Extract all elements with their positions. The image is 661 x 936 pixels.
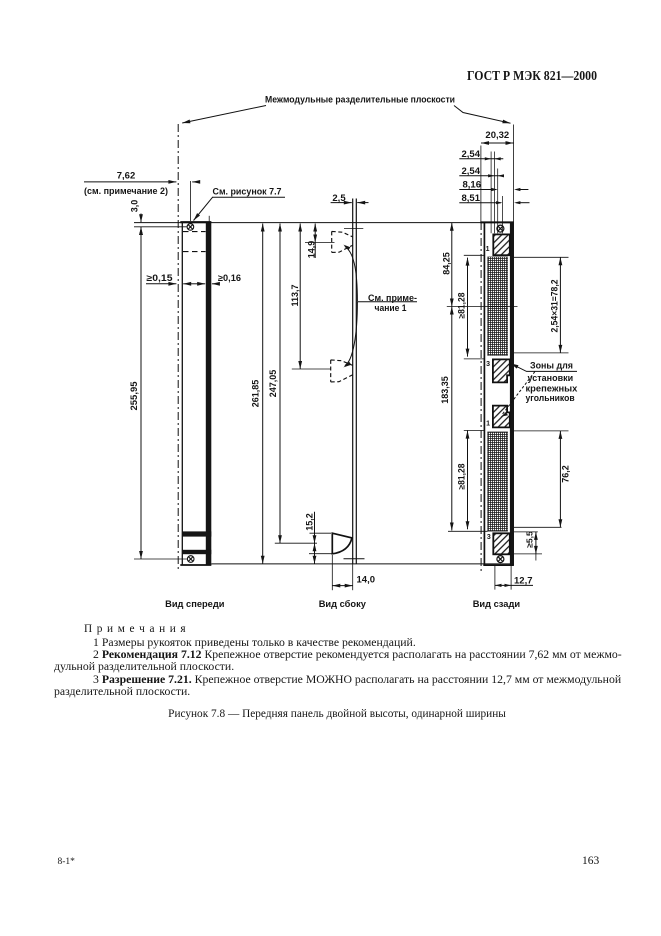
svg-text:≥0,16: ≥0,16 xyxy=(218,273,241,283)
svg-text:3: 3 xyxy=(486,361,490,368)
svg-text:≥81,28: ≥81,28 xyxy=(457,292,467,318)
svg-text:14,9: 14,9 xyxy=(307,241,317,259)
svg-text:ГОСТ Р МЭК 821—2000: ГОСТ Р МЭК 821—2000 xyxy=(467,69,597,84)
svg-text:См. рисунок 7.7: См. рисунок 7.7 xyxy=(213,187,282,197)
svg-text:2,54×31=78,2: 2,54×31=78,2 xyxy=(549,279,559,332)
svg-text:≥0,15: ≥0,15 xyxy=(147,273,173,283)
svg-text:8,51: 8,51 xyxy=(462,193,481,204)
svg-text:14,0: 14,0 xyxy=(357,575,376,586)
svg-text:20,32: 20,32 xyxy=(485,130,509,141)
svg-text:крепежных: крепежных xyxy=(526,383,578,393)
svg-text:183,35: 183,35 xyxy=(440,376,450,404)
svg-text:2,54: 2,54 xyxy=(462,166,481,177)
svg-text:261,85: 261,85 xyxy=(251,380,261,408)
svg-text:≥81,28: ≥81,28 xyxy=(456,463,466,489)
svg-text:Зоны для: Зоны для xyxy=(530,360,573,370)
svg-text:15,2: 15,2 xyxy=(305,513,315,531)
svg-text:См. приме-: См. приме- xyxy=(368,293,417,303)
svg-text:1: 1 xyxy=(486,246,490,253)
svg-text:247,05: 247,05 xyxy=(268,370,278,398)
svg-text:Вид сбоку: Вид сбоку xyxy=(319,599,367,609)
svg-text:угольников: угольников xyxy=(526,393,576,403)
svg-text:12,7: 12,7 xyxy=(514,576,533,587)
svg-text:чание 1: чание 1 xyxy=(375,303,407,313)
svg-text:3,0: 3,0 xyxy=(129,200,139,213)
svg-text:Вид спереди: Вид спереди xyxy=(165,599,225,609)
svg-text:8,16: 8,16 xyxy=(463,180,482,191)
svg-text:≥5,5: ≥5,5 xyxy=(524,531,534,548)
svg-text:1: 1 xyxy=(486,420,490,427)
svg-text:2,54: 2,54 xyxy=(462,149,481,160)
svg-text:Вид сзади: Вид сзади xyxy=(473,599,521,609)
svg-text:Межмодульные разделительные пл: Межмодульные разделительные плоскости xyxy=(265,95,455,105)
svg-text:84,25: 84,25 xyxy=(441,252,451,275)
svg-text:установки: установки xyxy=(528,373,574,383)
svg-text:3: 3 xyxy=(487,534,491,541)
svg-text:(см. примечание 2): (см. примечание 2) xyxy=(84,186,168,196)
svg-text:255,95: 255,95 xyxy=(129,381,140,411)
svg-text:2,5: 2,5 xyxy=(332,193,346,204)
svg-text:76,2: 76,2 xyxy=(560,465,570,483)
svg-text:113,7: 113,7 xyxy=(290,284,300,306)
svg-text:7,62: 7,62 xyxy=(117,171,136,182)
